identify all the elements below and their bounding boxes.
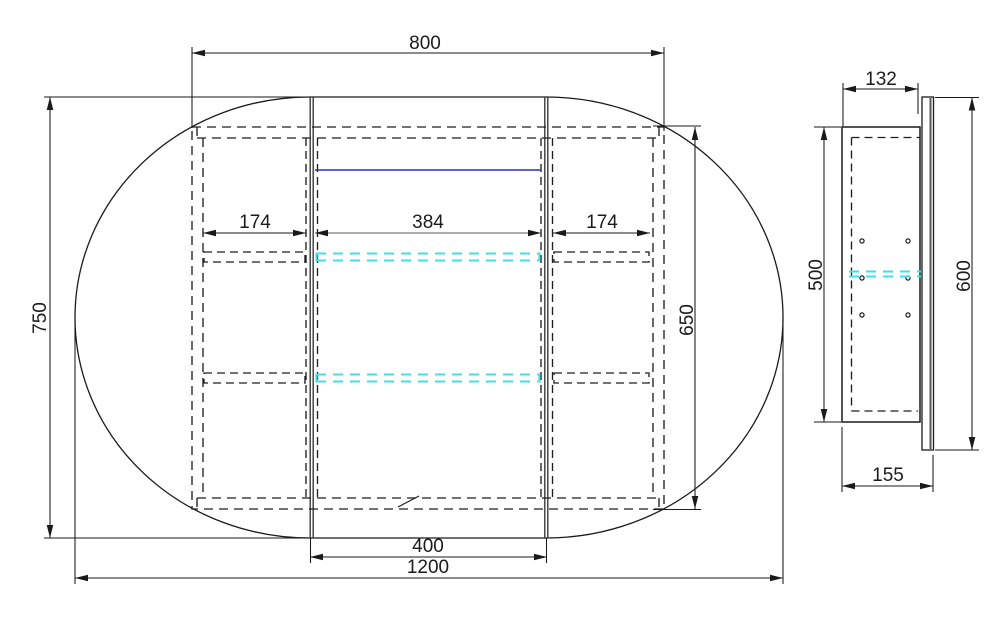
dim-132-label: 132 bbox=[865, 69, 897, 90]
dimension-left-door: 174 bbox=[203, 212, 306, 236]
shelf-bottom-right bbox=[554, 373, 649, 383]
dimension-overall-height: 750 bbox=[30, 97, 53, 538]
arrowhead bbox=[905, 86, 918, 93]
side-view: 132 500 600 155 bbox=[806, 69, 979, 492]
dimension-mirror-height: 600 bbox=[935, 98, 979, 451]
side-mirror-panel bbox=[922, 97, 934, 450]
arrowhead bbox=[47, 525, 54, 538]
dimension-body-depth: 132 bbox=[843, 69, 918, 126]
dim-500-label: 500 bbox=[806, 259, 827, 291]
dim-155-label: 155 bbox=[872, 465, 904, 486]
arrowhead bbox=[528, 230, 541, 237]
glass-shelf-bottom bbox=[316, 374, 540, 383]
arrowhead bbox=[75, 575, 88, 582]
front-view: 800 750 174 384 174 bbox=[30, 33, 783, 584]
arrowhead bbox=[821, 409, 828, 422]
dim-400-label: 400 bbox=[412, 536, 444, 557]
dim-600-label: 600 bbox=[954, 260, 975, 292]
dim-650-label: 650 bbox=[677, 304, 698, 336]
door-divider-left bbox=[310, 97, 313, 538]
arrowhead bbox=[692, 127, 699, 140]
arrowhead bbox=[969, 98, 976, 111]
dimension-body-height: 500 bbox=[806, 127, 841, 422]
glass-shelf-top bbox=[316, 253, 540, 262]
pin-hole bbox=[906, 313, 910, 317]
shelf-top-right bbox=[554, 252, 649, 262]
dim-800-label: 800 bbox=[409, 33, 441, 54]
hidden-partition-panels bbox=[306, 138, 553, 498]
dim-1200-label: 1200 bbox=[407, 557, 449, 578]
arrowhead bbox=[310, 554, 323, 561]
side-hidden-panels bbox=[852, 138, 921, 412]
dim-750-label: 750 bbox=[30, 302, 51, 334]
dimension-cabinet-height: 650 bbox=[653, 126, 701, 510]
hidden-shelves bbox=[204, 252, 649, 383]
pin-hole bbox=[860, 313, 864, 317]
dimension-right-door: 174 bbox=[553, 212, 650, 236]
arrowhead bbox=[651, 50, 664, 57]
arrowhead bbox=[969, 437, 976, 450]
dimension-overall-depth: 155 bbox=[842, 427, 933, 492]
shelf-pin-holes bbox=[860, 239, 910, 317]
technical-drawing-page: 800 750 174 384 174 bbox=[0, 0, 998, 624]
arrowhead bbox=[842, 483, 855, 490]
arrowhead bbox=[821, 127, 828, 140]
hidden-cabinet-carcass bbox=[192, 127, 664, 509]
shelf-top-left bbox=[204, 252, 305, 262]
arrowhead bbox=[293, 230, 306, 237]
pin-hole bbox=[860, 276, 864, 280]
dim-384-label: 384 bbox=[412, 212, 444, 233]
dim-174-right-label: 174 bbox=[586, 212, 618, 233]
arrowhead bbox=[47, 97, 54, 110]
pin-hole bbox=[906, 239, 910, 243]
side-glass-shelf bbox=[849, 272, 921, 277]
arrowhead bbox=[843, 86, 856, 93]
arrowhead bbox=[534, 554, 547, 561]
arrowhead bbox=[553, 230, 566, 237]
dimension-center-opening: 384 bbox=[315, 212, 541, 236]
arrowhead bbox=[637, 230, 650, 237]
shelf-bottom-left bbox=[204, 373, 305, 383]
dimension-cabinet-width: 800 bbox=[192, 33, 664, 131]
door-divider-right bbox=[545, 97, 548, 538]
arrowhead bbox=[692, 496, 699, 509]
arrowhead bbox=[770, 575, 783, 582]
arrowhead bbox=[203, 230, 216, 237]
pin-hole bbox=[860, 239, 864, 243]
arrowhead bbox=[192, 50, 205, 57]
side-cabinet-body bbox=[842, 127, 920, 422]
arrowhead bbox=[920, 483, 933, 490]
carcass-outer-outline bbox=[192, 127, 664, 509]
mirror-cabinet-drawing: 800 750 174 384 174 bbox=[0, 0, 998, 624]
dim-174-left-label: 174 bbox=[239, 212, 271, 233]
